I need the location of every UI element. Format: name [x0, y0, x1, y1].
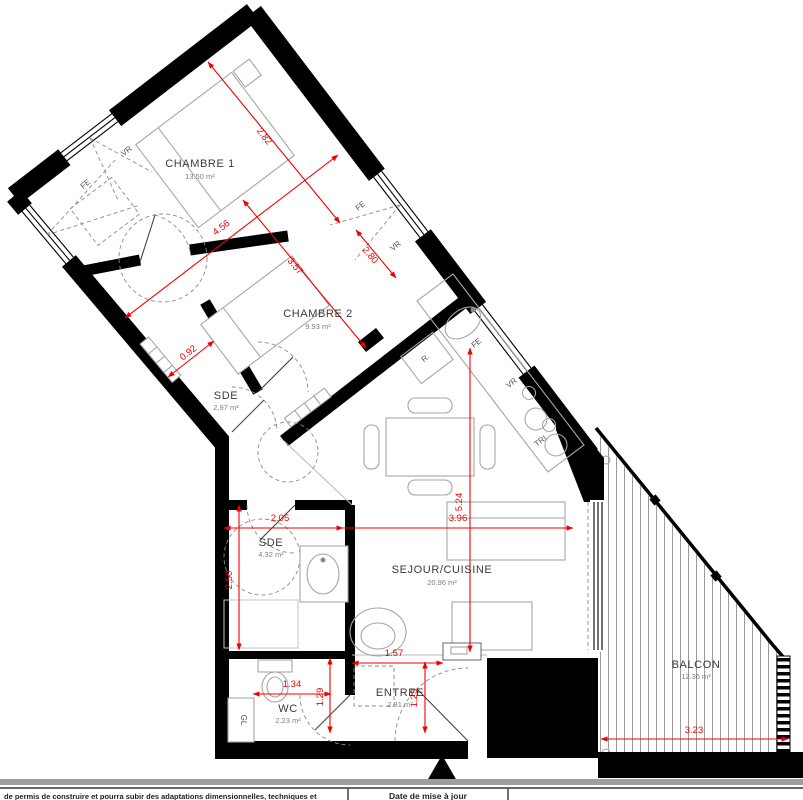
room-entree: ENTREE — [376, 687, 424, 699]
area-entree: 2.81 m² — [387, 700, 413, 709]
tag-vr: VR — [119, 144, 133, 158]
room-sejour: SEJOUR/CUISINE — [392, 564, 493, 576]
shower-tray — [224, 600, 298, 648]
dim-balcon-width: 3.23 — [685, 725, 704, 736]
tag-gl: GL — [239, 715, 248, 726]
tag-fe: FE — [470, 336, 484, 349]
stove-burner — [543, 419, 556, 432]
wall-mass — [487, 658, 598, 758]
dim-sde2-height: 2.50 — [224, 571, 235, 590]
room-wc: WC — [278, 703, 298, 715]
room-sde2: SDE — [259, 537, 283, 549]
room-chambre1: CHAMBRE 1 — [165, 158, 235, 170]
balcony-side-railing — [777, 656, 790, 758]
footer: de permis de construire et pourra subir … — [0, 779, 803, 800]
balcony-bottom-wall — [598, 752, 803, 778]
entry-panel-box — [443, 643, 481, 660]
area-chambre1: 13.50 m² — [185, 172, 215, 181]
dim-wc-width: 1.34 — [283, 679, 302, 690]
footer-date-label: Date de mise à jour — [389, 791, 468, 800]
room-balcon: BALCON — [672, 659, 721, 671]
dim-chambre1-length: 4.56 — [211, 218, 232, 238]
tag-vr: VR — [388, 239, 402, 253]
area-sde1: 2.97 m² — [213, 403, 239, 412]
window-tags: VR FE FE VR FE VR R. TRI GL — [79, 144, 549, 726]
dim-entree-top: 1.57 — [385, 648, 404, 659]
area-sde2: 4.32 m² — [258, 550, 284, 559]
stove-burner — [525, 408, 547, 430]
dim-sejour-width: 3.96 — [449, 513, 468, 524]
footer-note: de permis de construire et pourra subir … — [4, 792, 317, 800]
tag-fridge: R. — [420, 352, 432, 364]
room-sde1: SDE — [214, 390, 238, 402]
room-chambre2: CHAMBRE 2 — [283, 308, 353, 320]
tag-tri: TRI — [533, 434, 549, 449]
dim-hall-height: 1.29 — [315, 688, 326, 707]
chair — [408, 398, 452, 413]
wall-wedge — [556, 398, 604, 502]
balcony-area — [596, 428, 790, 758]
area-wc: 2.23 m² — [275, 716, 301, 725]
dim-sde1-width: 0.92 — [178, 343, 199, 363]
vanity — [300, 546, 348, 602]
dim-sejour-height: 5.24 — [454, 493, 465, 512]
window-balcony-door — [588, 500, 606, 652]
dim-chambre2-window: 2.80 — [360, 245, 380, 266]
tag-fe: FE — [79, 177, 93, 190]
floor-plan-drawing: 2.82 4.56 3.57 0.92 2.80 2.05 3.96 2.50 … — [0, 0, 803, 800]
tag-fe: FE — [354, 199, 368, 212]
area-chambre2: 9.93 m² — [305, 322, 331, 331]
chair — [364, 425, 379, 469]
dim-sde2-width: 2.05 — [271, 513, 290, 524]
chair — [408, 480, 452, 495]
floor-plan-page: 2.82 4.56 3.57 0.92 2.80 2.05 3.96 2.50 … — [0, 0, 803, 800]
area-sejour: 20.96 m² — [427, 578, 457, 587]
chair — [480, 425, 495, 469]
dining-table — [364, 398, 495, 495]
area-balcon: 12.36 m² — [681, 672, 711, 681]
